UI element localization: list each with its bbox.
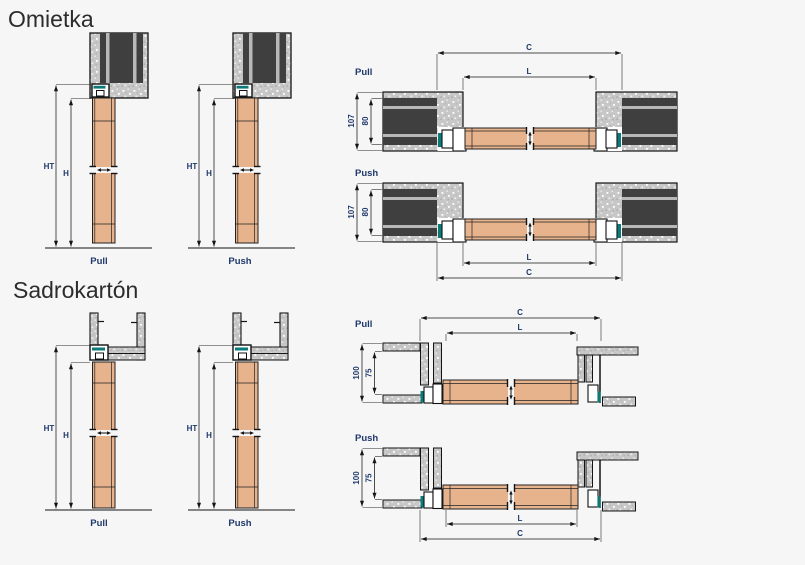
omietka-title: Omietka (8, 6, 94, 32)
frame-seal (94, 86, 106, 89)
ht-label: HT (187, 162, 198, 171)
door-sections-page: Omietka (0, 0, 805, 565)
sadrokarton-title: Sadrokartón (13, 277, 138, 303)
drywall-board (107, 354, 145, 361)
depth-frame-label: 80 (361, 116, 370, 125)
h-label: H (63, 169, 69, 178)
drywall-board (383, 395, 422, 403)
frame-profile-right (594, 127, 622, 151)
break-mark (89, 167, 118, 174)
frame-seal (421, 391, 424, 403)
frame-seal (92, 348, 105, 351)
h-label: H (63, 431, 69, 440)
drywall-board (383, 343, 420, 351)
push-label: Push (228, 256, 251, 267)
drywall-board (90, 313, 98, 347)
break-mark (89, 430, 118, 437)
depth-total-label: 107 (347, 205, 356, 219)
frame-profile-right (588, 385, 601, 403)
l-label: L (527, 67, 532, 76)
frame-seal (618, 133, 622, 147)
pull-label: Pull (90, 518, 107, 529)
sadrokarton-vertical-drawing (45, 313, 152, 510)
h-label: H (206, 431, 212, 440)
break-mark (527, 126, 534, 151)
omietka-horizontal-push-drawing (383, 183, 677, 242)
drywall-board (421, 343, 429, 385)
drywall-board (578, 355, 585, 382)
omietka-vertical-push-drawing (188, 33, 295, 248)
pull-label: Pull (90, 256, 107, 267)
c-label: C (517, 529, 523, 538)
ht-label: HT (44, 424, 55, 433)
depth-total-label: 100 (352, 366, 361, 380)
omietka-vertical-drawing (45, 33, 152, 248)
push-label: Push (355, 168, 378, 179)
drywall-board (586, 355, 593, 382)
depth-total-label: 107 (347, 114, 356, 128)
depth-frame-label: 75 (365, 473, 374, 482)
sadrokarton-horizontal-drawing (383, 343, 638, 406)
omietka-horizontal-drawing (383, 92, 677, 151)
drywall-board (603, 397, 636, 406)
depth-frame-label: 75 (365, 368, 374, 377)
drywall-board (434, 343, 442, 383)
c-label: C (526, 268, 532, 277)
ht-label: HT (187, 424, 198, 433)
ht-label: HT (44, 162, 55, 171)
wall-core-left (383, 98, 437, 145)
drywall-board (577, 347, 638, 355)
break-mark (508, 378, 515, 406)
depth-total-label: 100 (352, 471, 361, 485)
depth-frame-label: 80 (361, 207, 370, 216)
sadrokarton-vertical-push-drawing (188, 313, 295, 510)
sadrokarton-section: Sadrokartón (13, 277, 638, 542)
pull-label: Pull (355, 319, 372, 330)
push-label: Push (228, 518, 251, 529)
drywall-board (107, 347, 145, 354)
frame-profile-left (421, 384, 443, 404)
frame-seal (438, 133, 442, 147)
l-label: L (518, 514, 523, 523)
push-label: Push (355, 433, 378, 444)
c-label: C (526, 43, 532, 52)
h-label: H (206, 169, 212, 178)
frame-profile-left (438, 127, 467, 151)
sadrokarton-horizontal-push-drawing (383, 448, 638, 511)
wall-core-right (622, 98, 677, 145)
door-sections-diagram: Omietka (0, 0, 805, 565)
omietka-section: Omietka (8, 6, 677, 281)
pull-label: Pull (355, 67, 372, 78)
l-label: L (518, 323, 523, 332)
frame-seal (598, 392, 601, 403)
l-label: L (527, 253, 532, 262)
c-label: C (517, 308, 523, 317)
